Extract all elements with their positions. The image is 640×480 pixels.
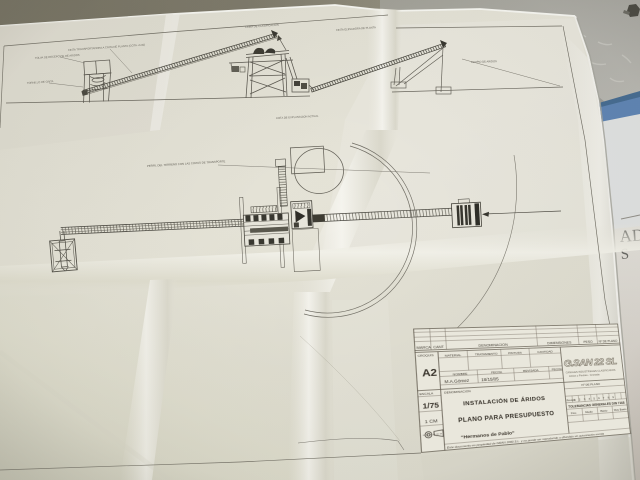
- svg-text:CANTIDAD: CANTIDAD: [537, 350, 553, 354]
- svg-text:CANT: CANT: [433, 345, 444, 350]
- svg-text:PINTURA: PINTURA: [508, 351, 523, 355]
- svg-text:18/15/05: 18/15/05: [481, 377, 499, 383]
- svg-text:Basto: Basto: [600, 409, 607, 413]
- svg-text:A2: A2: [422, 366, 438, 379]
- svg-text:FECHA: FECHA: [491, 370, 503, 374]
- svg-text:1 CM: 1 CM: [425, 419, 439, 425]
- svg-text:FECHA: FECHA: [552, 367, 563, 371]
- svg-text:CROQUIS: CROQUIS: [417, 354, 434, 358]
- svg-text:Nº DE PLANO: Nº DE PLANO: [599, 340, 618, 344]
- svg-text:Fino: Fino: [571, 411, 577, 415]
- svg-text:PESO: PESO: [583, 340, 593, 344]
- svg-text:MARCA: MARCA: [416, 345, 431, 350]
- svg-text:1/75: 1/75: [422, 401, 439, 411]
- svg-text:MATERIAL: MATERIAL: [445, 354, 462, 358]
- svg-text:Medio: Medio: [585, 410, 593, 414]
